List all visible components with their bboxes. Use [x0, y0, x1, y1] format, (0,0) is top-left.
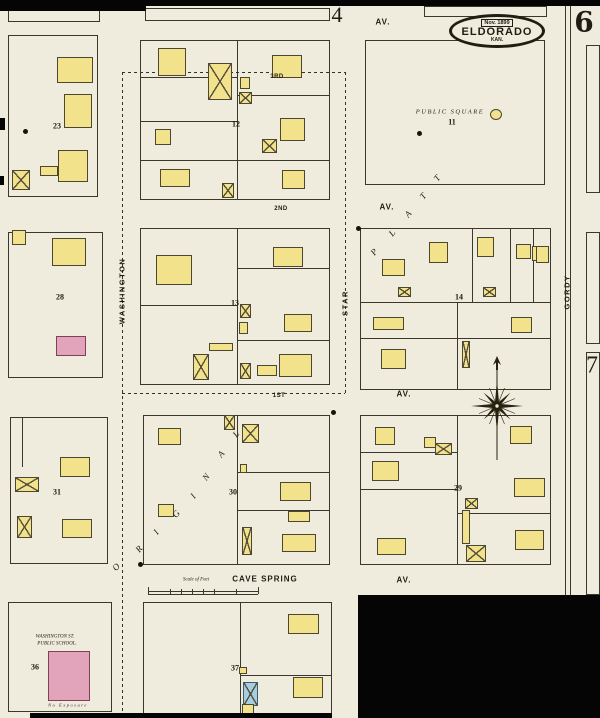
lot-line: [240, 602, 241, 716]
building-footprint: [60, 457, 90, 477]
building-footprint: [15, 477, 39, 492]
lot-line: [472, 228, 473, 302]
lot-line: [203, 589, 204, 594]
survey-dot: [138, 562, 143, 567]
building-footprint: [40, 166, 58, 176]
street-number-label: 1ST: [273, 393, 286, 399]
block-number-label: 14: [455, 293, 463, 302]
building-footprint: [273, 247, 303, 267]
street-avenue-label: CAVE SPRING: [232, 575, 298, 584]
lot-line: [140, 305, 237, 306]
block-number-label: 11: [448, 118, 456, 127]
building-footprint: [375, 427, 395, 445]
street-dashed-line: [122, 72, 123, 718]
building-footprint: [155, 129, 171, 145]
street-avenue-label: AV.: [379, 203, 394, 212]
cutout-region: [0, 118, 5, 130]
building-footprint: [64, 94, 92, 128]
building-footprint: [160, 169, 190, 187]
lot-line: [236, 589, 237, 594]
lot-line: [360, 338, 551, 339]
building-footprint: [398, 287, 411, 297]
building-footprint: [17, 516, 32, 538]
building-footprint: [435, 443, 452, 455]
building-footprint: [536, 246, 549, 263]
annotation-label: WASHINGTON ST.: [36, 635, 75, 640]
no-exposure-label: No Exposure: [48, 703, 88, 708]
building-footprint: [222, 183, 234, 198]
building-footprint: [240, 464, 247, 473]
building-footprint: [280, 482, 311, 501]
lot-line: [181, 589, 182, 594]
city-block-outline: [145, 8, 330, 21]
compass-rose-icon: [465, 350, 529, 462]
lot-line: [148, 587, 149, 594]
building-footprint: [158, 428, 181, 445]
street-dashed-line: [345, 72, 346, 393]
city-block-outline: [586, 232, 600, 344]
block-number-label: 23: [53, 122, 61, 131]
annotation-label: Scale of Feet: [183, 578, 209, 583]
building-footprint: [516, 244, 531, 259]
building-footprint: [257, 365, 277, 376]
building-footprint: [288, 614, 319, 634]
building-footprint: [239, 322, 248, 334]
block-number-label: 37: [231, 664, 239, 673]
building-footprint: [373, 317, 404, 330]
building-footprint: [382, 259, 405, 276]
cutout-region: [358, 595, 600, 718]
street-name-label: WASHINGTON: [118, 258, 127, 325]
building-footprint: [57, 57, 93, 83]
building-footprint: [193, 354, 209, 380]
lot-line: [237, 268, 330, 269]
building-footprint: [377, 538, 406, 555]
building-footprint: [240, 304, 251, 318]
public-square-label: PUBLIC SQUARE: [416, 109, 484, 116]
building-footprint: [381, 349, 406, 369]
street-dashed-line: [122, 393, 345, 394]
building-footprint: [56, 336, 86, 356]
building-footprint: [462, 510, 470, 544]
building-footprint: [483, 287, 496, 297]
lot-line: [360, 302, 551, 303]
building-footprint: [262, 139, 277, 153]
annotation-label: PUBLIC SCHOOL.: [37, 642, 76, 647]
lot-line: [258, 587, 259, 594]
building-footprint: [477, 237, 494, 257]
building-footprint: [243, 682, 258, 706]
lot-line: [457, 302, 458, 390]
building-footprint: [156, 255, 192, 285]
building-footprint: [280, 118, 305, 141]
page-number: 7: [586, 353, 598, 380]
city-block-outline: [8, 10, 100, 22]
lot-line: [192, 589, 193, 594]
building-footprint: [209, 343, 233, 351]
city-block-outline: [586, 352, 600, 595]
building-footprint: [240, 363, 251, 379]
lot-line: [533, 228, 534, 302]
building-footprint: [239, 667, 247, 674]
block-number-label: 29: [454, 484, 462, 493]
building-footprint: [282, 170, 305, 189]
lot-line: [140, 121, 237, 122]
lot-line: [148, 594, 258, 595]
building-footprint: [288, 511, 310, 522]
street-dashed-line: [122, 72, 345, 73]
map-state: KAN.: [491, 38, 503, 43]
lot-line: [457, 513, 551, 514]
street-name-label: GORDY: [563, 274, 572, 309]
building-footprint: [490, 109, 502, 120]
street-number-label: 2ND: [274, 206, 288, 212]
sanborn-map-canvas: Nov. 1899 ELDORADO KAN. AV.AV.AV.AV.CAVE…: [0, 0, 600, 718]
street-avenue-label: AV.: [396, 576, 411, 585]
lot-line: [237, 340, 330, 341]
cutout-region: [30, 713, 332, 718]
survey-dot: [356, 226, 361, 231]
street-avenue-label: AV.: [375, 18, 390, 27]
building-footprint: [515, 530, 544, 550]
building-footprint: [239, 92, 252, 104]
lot-line: [170, 589, 171, 594]
building-footprint: [282, 534, 316, 552]
block-number-label: 12: [232, 120, 240, 129]
street-name-label: STAR: [341, 290, 350, 316]
building-footprint: [62, 519, 92, 538]
lot-line: [214, 589, 215, 594]
page-number: 6: [574, 6, 593, 39]
building-footprint: [465, 498, 478, 509]
building-footprint: [514, 478, 545, 497]
building-footprint: [466, 545, 486, 562]
building-footprint: [48, 651, 90, 701]
building-footprint: [511, 317, 532, 333]
building-footprint: [279, 354, 312, 377]
cutout-region: [0, 0, 146, 11]
block-number-label: 31: [53, 488, 61, 497]
city-block-outline: [586, 45, 600, 193]
lot-line: [240, 675, 332, 676]
building-footprint: [52, 238, 86, 266]
cutout-region: [0, 176, 4, 185]
survey-dot: [417, 131, 422, 136]
map-title-badge: Nov. 1899 ELDORADO KAN.: [449, 14, 545, 48]
building-footprint: [372, 461, 399, 481]
building-footprint: [242, 424, 259, 443]
lot-line: [22, 417, 23, 467]
building-footprint: [240, 77, 250, 89]
building-footprint: [158, 48, 186, 76]
block-number-label: 36: [31, 663, 39, 672]
lot-line: [360, 489, 457, 490]
street-number-label: 3RD: [270, 74, 284, 80]
building-footprint: [58, 150, 88, 182]
building-footprint: [293, 677, 323, 698]
building-footprint: [429, 242, 448, 263]
building-footprint: [208, 63, 232, 100]
lot-line: [510, 228, 511, 302]
building-footprint: [12, 170, 30, 190]
building-footprint: [242, 527, 252, 555]
lot-line: [237, 472, 330, 473]
survey-dot: [23, 129, 28, 134]
lot-line: [237, 510, 330, 511]
building-footprint: [284, 314, 312, 332]
survey-dot: [331, 410, 336, 415]
block-number-label: 13: [231, 299, 239, 308]
lot-line: [140, 160, 330, 161]
block-number-label: 28: [56, 293, 64, 302]
block-number-label: 30: [229, 488, 237, 497]
building-footprint: [12, 230, 26, 245]
street-avenue-label: AV.: [396, 390, 411, 399]
